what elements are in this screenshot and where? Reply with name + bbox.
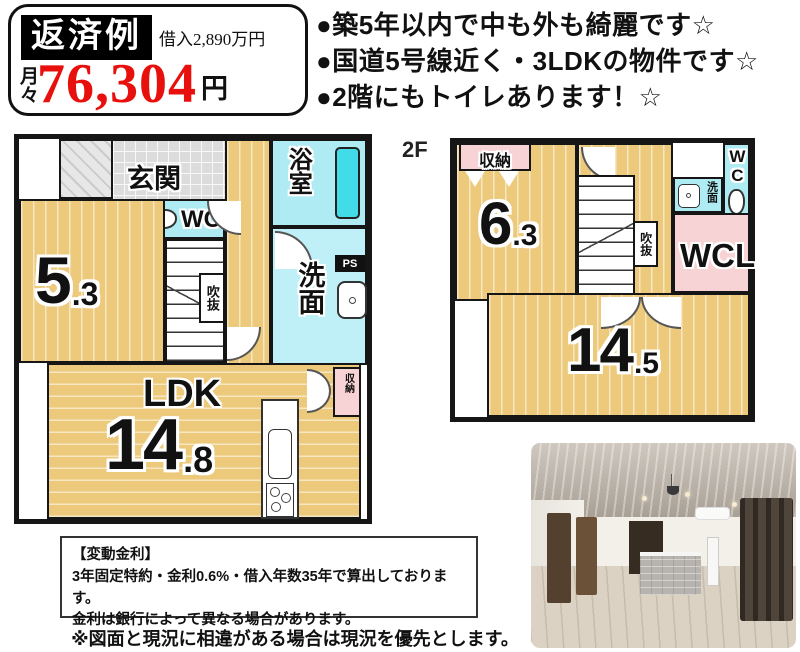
ldk-closet-label: 収納: [342, 373, 353, 393]
room-14-5-size-dec: .5: [634, 349, 659, 379]
floorplan-1f: 玄関 浴室 収納 WC 5 .3 吹抜: [14, 134, 372, 524]
ps-label: PS: [335, 255, 365, 272]
loan-amount-label: 借入2,890万円: [159, 25, 265, 50]
photo-door-left-2: [576, 517, 597, 595]
monthly-amount-value: 76,304: [37, 56, 197, 112]
disclaimer-note: ※図面と現況に相違がある場合は現況を優先とします。: [55, 625, 535, 651]
kitchen-sink-icon: [268, 429, 292, 479]
stove-icon: [266, 483, 294, 517]
sink-drain-dot: [349, 297, 356, 304]
kitchen-counter-icon: [261, 399, 299, 519]
photo-radiator-panel: [707, 537, 719, 586]
room-5-3: 5 .3: [19, 199, 165, 363]
interior-photo: [531, 443, 796, 648]
sink-icon: [678, 184, 700, 208]
photo-door-left: [547, 513, 571, 603]
room-14-5-size-main: 14: [567, 323, 632, 379]
room-5-3-size-main: 5: [35, 251, 70, 310]
sink-drain-dot: [686, 193, 691, 198]
photo-downlight: [685, 492, 690, 497]
stairs-2f: [577, 175, 635, 301]
room-washroom-2f: 洗面: [673, 177, 723, 213]
photo-kitchen-island: [640, 552, 701, 595]
room-bathroom: 浴室: [271, 139, 367, 227]
wc-2f-label: WC: [728, 147, 746, 185]
room-6-3-size: 6 .3: [479, 197, 537, 251]
floorplan-2f: 6 .3 収納 吹抜 洗面 WC WCL: [450, 138, 755, 422]
room-6-3-size-main: 6: [479, 197, 510, 251]
room-14-5: 14 .5: [487, 293, 750, 417]
toilet-icon: [728, 189, 745, 215]
washroom-1f-label: 洗面: [295, 261, 323, 315]
bathtub-icon: [335, 147, 360, 219]
genkan-label: 玄関: [127, 157, 181, 196]
closet-2f: 収納: [459, 143, 531, 171]
void-label-2f: 吹抜: [633, 221, 658, 267]
ldk-size-dec: .8: [183, 442, 213, 478]
wcl-label: WCL: [680, 237, 755, 275]
void-label-1f: 吹抜: [199, 273, 225, 323]
highlight-item-3: ●2階にもトイレあります！☆: [316, 79, 800, 115]
ldk-closet: 収納: [333, 367, 361, 417]
room-wcl: WCL: [673, 213, 750, 293]
property-highlights: ●築5年以内で中も外も綺麗です☆ ●国道5号線近く・3LDKの物件です☆ ●2階…: [316, 7, 800, 115]
room-5-3-size-dec: .3: [72, 278, 99, 310]
room-14-5-size: 14 .5: [567, 323, 659, 379]
room-5-3-size: 5 .3: [35, 251, 98, 310]
monthly-prefix-label: 月々: [17, 66, 37, 104]
rate-note-line1: 3年固定特約・金利0.6%・借入年数35年で算出しております。: [72, 567, 466, 611]
ldk-size-main: 14: [105, 413, 181, 478]
washroom-2f-label: 洗面: [705, 181, 717, 203]
rate-note-title: 【変動金利】: [72, 545, 466, 567]
stove-burner-dot: [271, 502, 281, 512]
stove-burner-dot: [270, 487, 280, 497]
room-washroom-1f: 洗面 PS: [271, 227, 367, 365]
stove-burner-dot: [281, 493, 291, 503]
photo-air-conditioner: [695, 507, 729, 520]
repayment-amount-row: 月々 76,304 円: [17, 56, 305, 112]
room-6-3-size-dec: .3: [512, 221, 537, 251]
yen-unit-label: 円: [201, 67, 228, 106]
room-wc-2f: WC: [723, 143, 750, 219]
repayment-example-box: 返済例 借入2,890万円 月々 76,304 円: [8, 4, 308, 116]
bathroom-label: 浴室: [285, 147, 310, 195]
variable-rate-note-box: 【変動金利】 3年固定特約・金利0.6%・借入年数35年で算出しております。 金…: [60, 536, 478, 618]
flyer-root: 返済例 借入2,890万円 月々 76,304 円 ●築5年以内で中も外も綺麗で…: [0, 0, 800, 652]
closet-2f-label: 収納: [479, 147, 511, 171]
highlight-item-1: ●築5年以内で中も外も綺麗です☆: [316, 7, 800, 43]
floor-label-2f: 2F: [402, 137, 428, 163]
ldk-size: 14 .8: [105, 413, 213, 478]
highlight-item-2: ●国道5号線近く・3LDKの物件です☆: [316, 43, 800, 79]
sink-icon: [337, 281, 367, 319]
photo-curtains: [740, 498, 793, 621]
